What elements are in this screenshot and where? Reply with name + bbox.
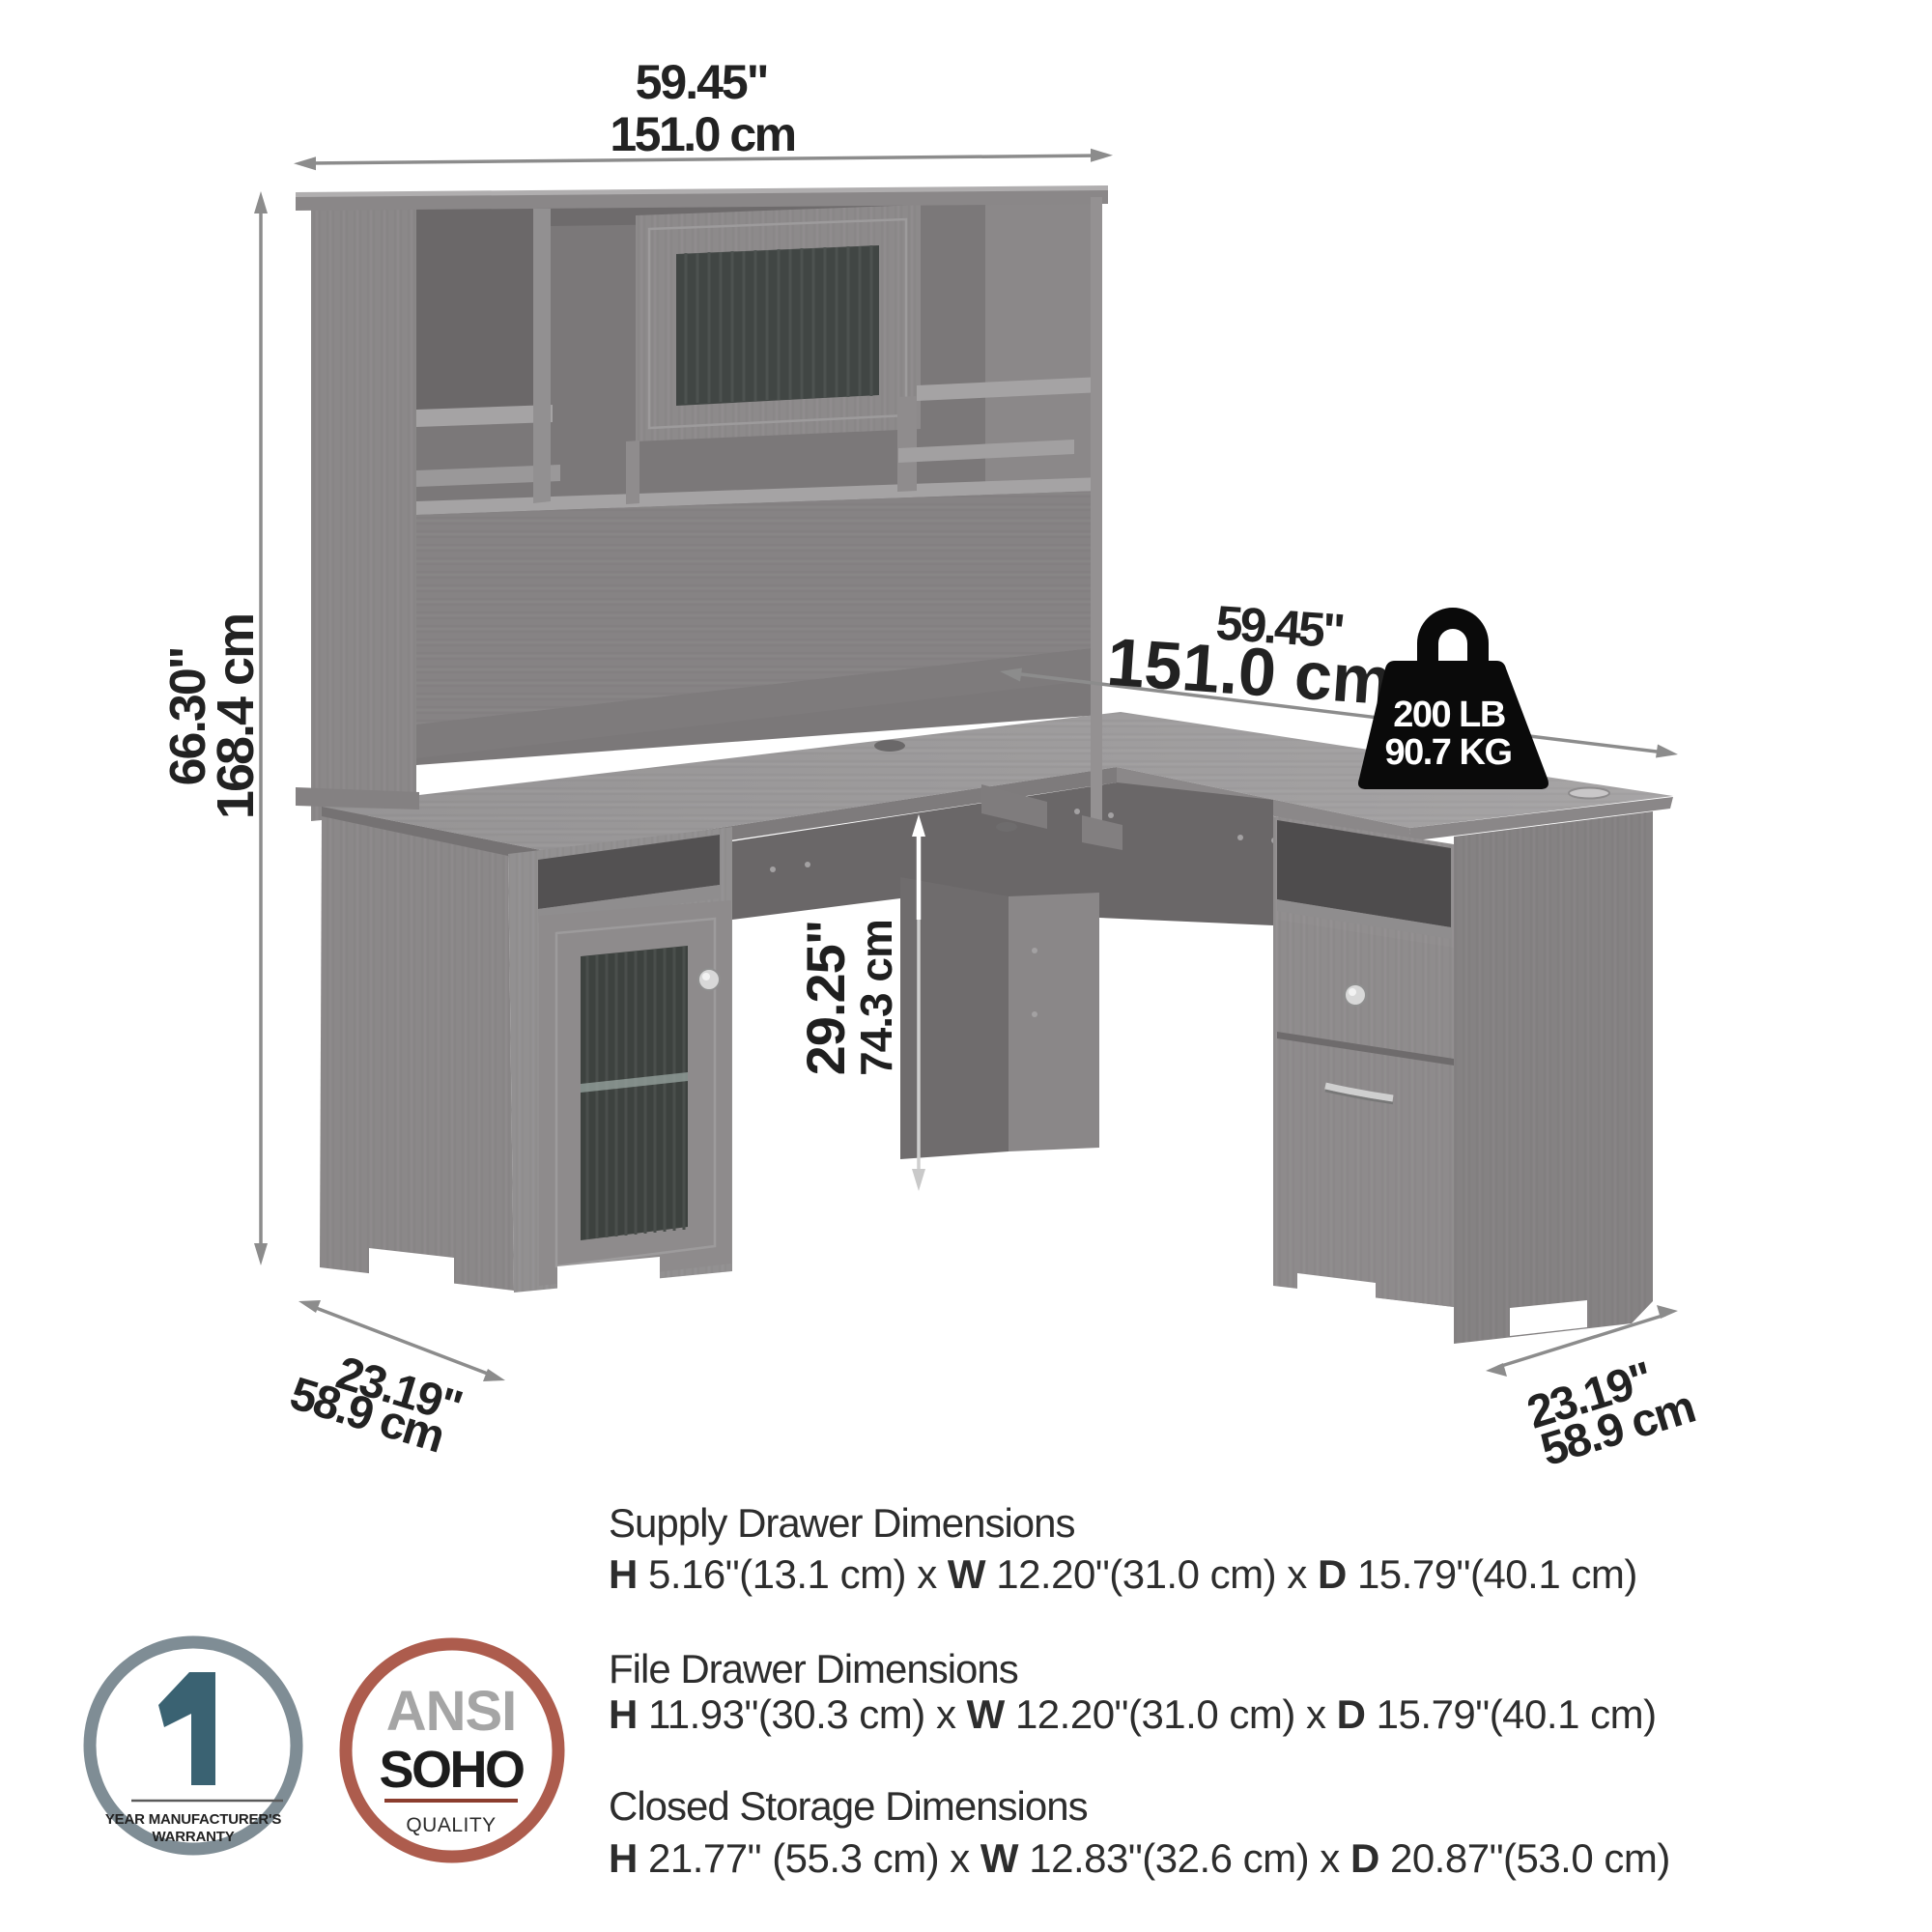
svg-text:WARRANTY: WARRANTY [152, 1829, 234, 1845]
svg-text:SOHO: SOHO [379, 1741, 524, 1799]
svg-text:QUALITY: QUALITY [406, 1814, 496, 1836]
svg-text:H 5.16"(13.1 cm) x W 12.20"(3: H 5.16"(13.1 cm) x W 12.20"(31.0 cm) x D… [609, 1551, 1637, 1597]
svg-text:H 21.77" (55.3 cm) x W 12.83": H 21.77" (55.3 cm) x W 12.83"(32.6 cm) x… [609, 1835, 1670, 1881]
svg-text:File Drawer Dimensions: File Drawer Dimensions [609, 1646, 1018, 1691]
svg-text:29.25": 29.25" [795, 921, 856, 1076]
svg-text:151.0 cm: 151.0 cm [610, 107, 794, 161]
svg-text:ANSI: ANSI [386, 1680, 517, 1743]
svg-text:90.7 KG: 90.7 KG [1384, 732, 1511, 773]
svg-text:200 LB: 200 LB [1393, 695, 1505, 735]
svg-text:YEAR MANUFACTURER'S: YEAR MANUFACTURER'S [105, 1811, 281, 1828]
svg-text:168.4 cm: 168.4 cm [207, 614, 265, 819]
svg-text:Closed Storage Dimensions: Closed Storage Dimensions [609, 1783, 1088, 1829]
svg-text:74.3 cm: 74.3 cm [851, 920, 901, 1076]
svg-text:Supply Drawer Dimensions: Supply Drawer Dimensions [609, 1500, 1075, 1546]
svg-text:59.45": 59.45" [636, 55, 768, 109]
svg-text:H 11.93"(30.3 cm) x W 12.20"(: H 11.93"(30.3 cm) x W 12.20"(31.0 cm) x … [609, 1691, 1657, 1737]
